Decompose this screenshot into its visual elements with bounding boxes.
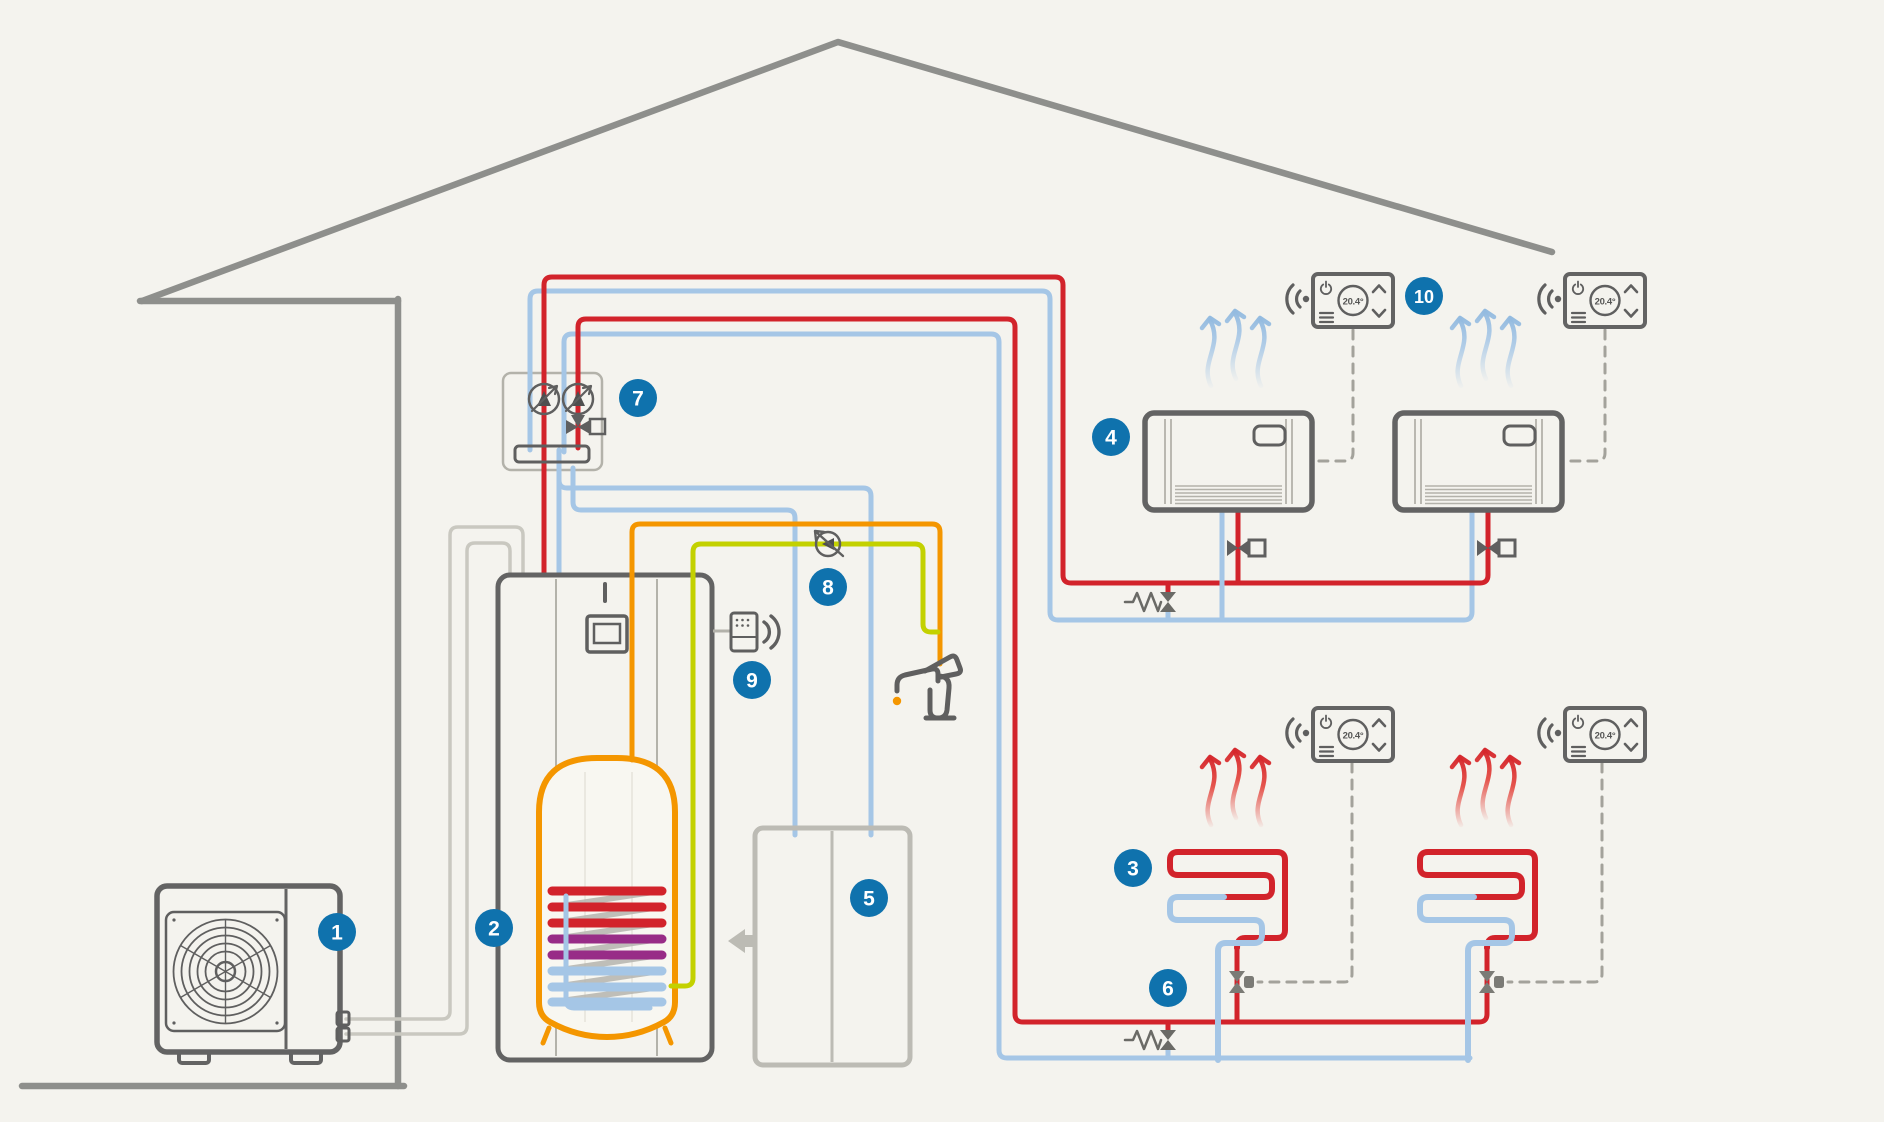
thermostat-1 <box>1287 274 1393 327</box>
thermostat-3 <box>1287 708 1393 761</box>
warm-air-arrows-icon <box>1452 750 1519 825</box>
tap-icon <box>897 656 961 718</box>
thermostat-4 <box>1539 708 1645 761</box>
diverter-valve-icon <box>566 415 605 434</box>
water-drop-icon <box>893 697 901 705</box>
zone-valve-fan-coil-1 <box>1227 540 1265 556</box>
badge-4: 4 <box>1092 418 1130 456</box>
floor-heating-loop-1 <box>1170 852 1285 1060</box>
badge-6: 6 <box>1149 969 1187 1007</box>
bypass-valve-floor-zone <box>1125 1021 1176 1059</box>
gateway-device <box>713 613 779 651</box>
badge-1: 1 <box>318 913 356 951</box>
fan-coil-unit-1 <box>1145 413 1312 510</box>
svg-text:6: 6 <box>1162 978 1174 1001</box>
zone-valve-floor-1 <box>1229 971 1254 993</box>
svg-text:1: 1 <box>331 922 343 945</box>
svg-text:5: 5 <box>863 888 875 911</box>
badge-10: 10 <box>1405 277 1443 315</box>
floor-heating-loop-2 <box>1420 852 1535 1060</box>
hot-water-cylinder <box>539 758 675 1043</box>
svg-text:8: 8 <box>822 577 834 600</box>
system-schematic: 20.4° <box>0 0 1884 1122</box>
roof <box>142 42 1552 301</box>
badge-5: 5 <box>850 879 888 917</box>
svg-text:3: 3 <box>1127 858 1139 881</box>
zone-valve-floor-2 <box>1479 971 1504 993</box>
thermostat-2 <box>1539 274 1645 327</box>
badge-2: 2 <box>475 909 513 947</box>
wifi-icon <box>764 616 779 648</box>
badge-3: 3 <box>1114 849 1152 887</box>
svg-text:7: 7 <box>632 388 644 411</box>
bypass-valve-fan-coil-zone <box>1125 583 1176 621</box>
fan-coil-unit-2 <box>1395 413 1562 510</box>
badges: 1 2 3 4 5 6 7 8 9 10 <box>318 277 1443 1007</box>
svg-text:2: 2 <box>488 918 500 941</box>
ventilation-cabinet <box>755 828 910 1065</box>
cool-air-arrows-icon <box>1202 311 1269 386</box>
svg-text:4: 4 <box>1105 427 1117 450</box>
svg-text:10: 10 <box>1414 287 1434 307</box>
warm-air-arrows-icon <box>1202 750 1269 825</box>
badge-8: 8 <box>809 568 847 606</box>
badge-7: 7 <box>619 379 657 417</box>
outdoor-unit <box>157 886 349 1063</box>
badge-9: 9 <box>733 661 771 699</box>
cool-air-arrows-icon <box>1452 311 1519 386</box>
svg-text:9: 9 <box>746 670 758 693</box>
zone-valve-fan-coil-2 <box>1477 540 1515 556</box>
fan-icon <box>174 920 278 1024</box>
